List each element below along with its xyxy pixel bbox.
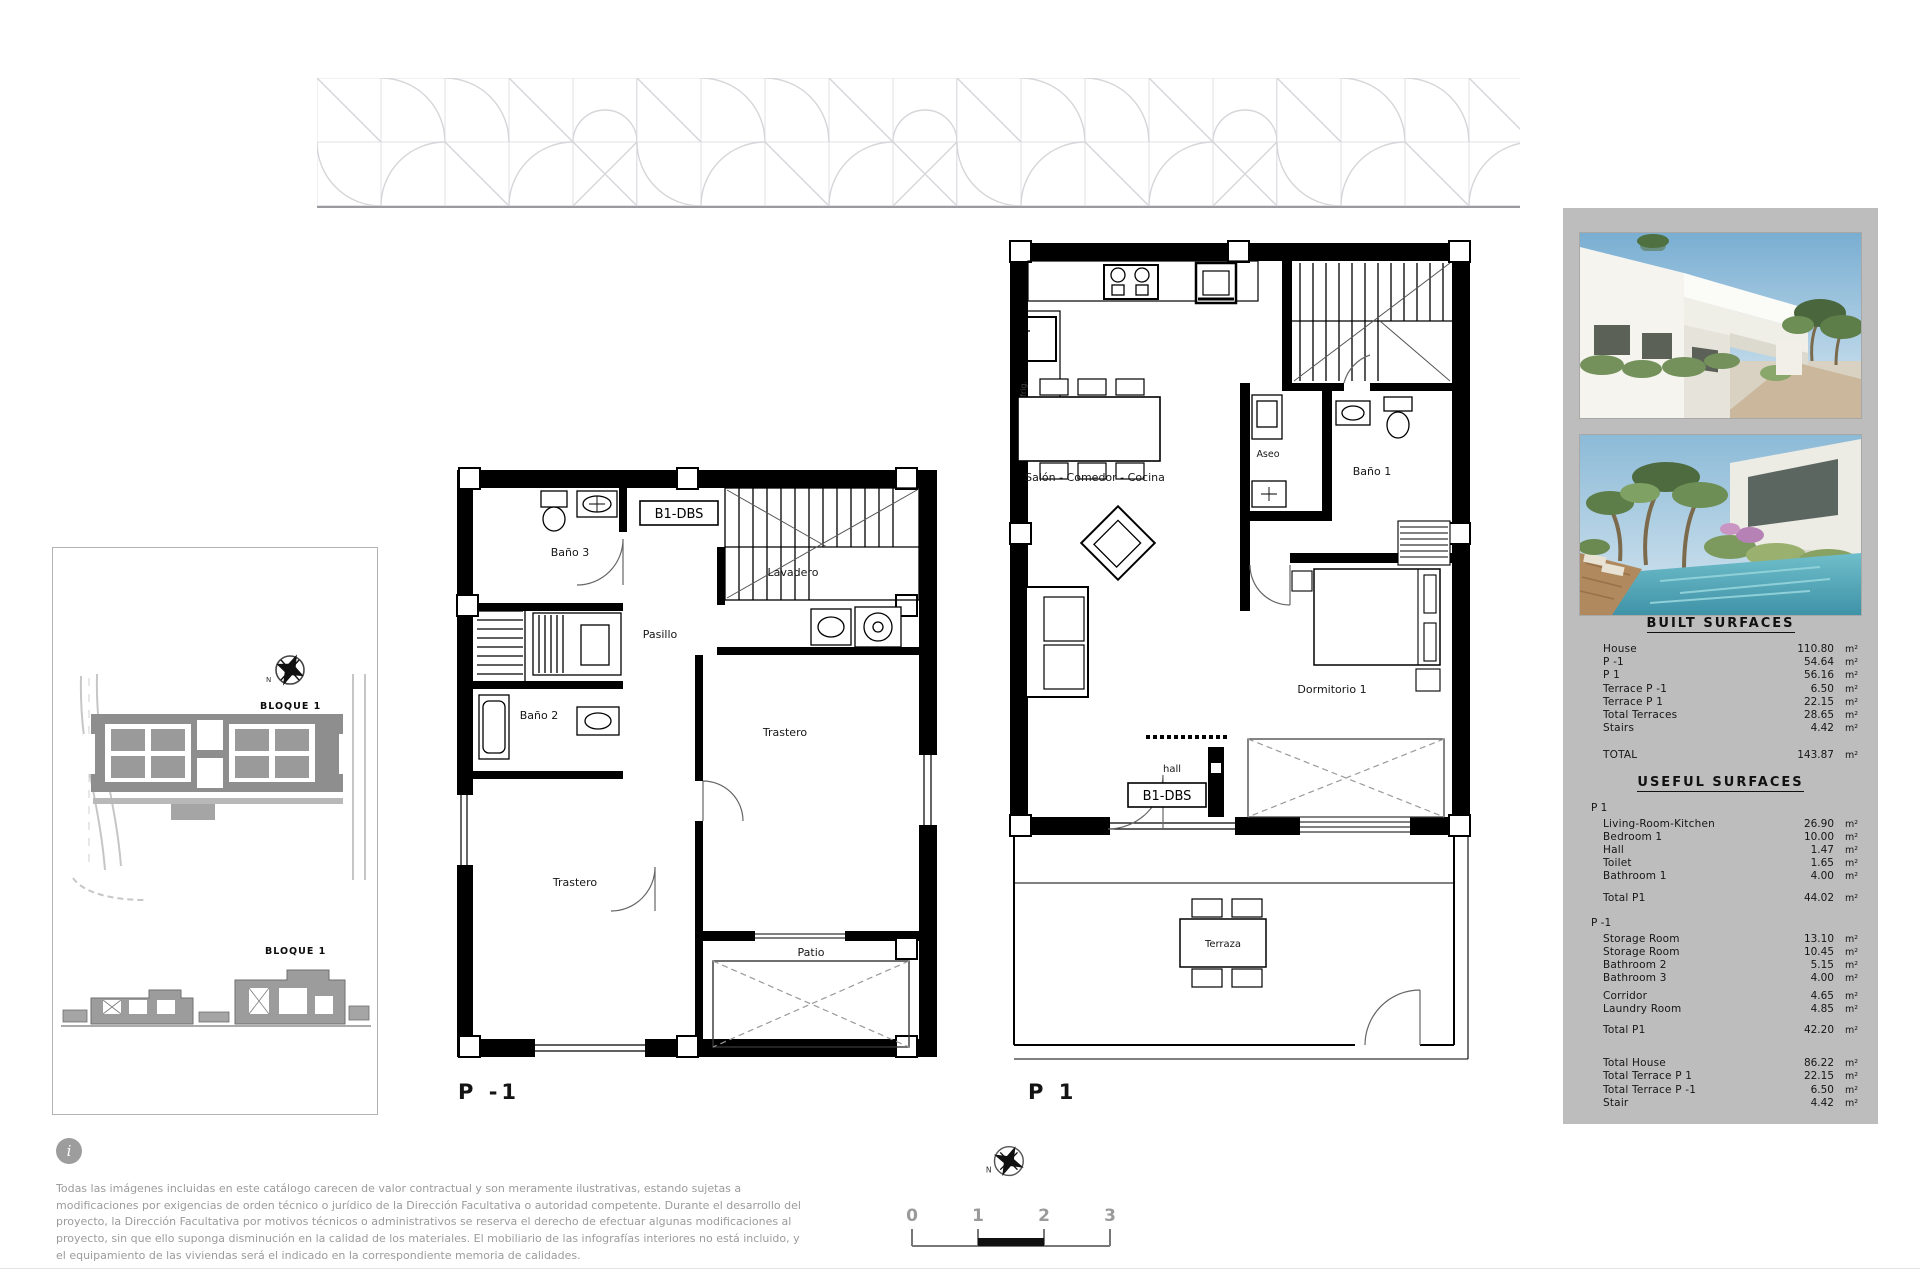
room-label-patio: Patio bbox=[798, 946, 825, 959]
site-plan-drawing: N BLOQUE 1 BLOQUE 1 bbox=[53, 548, 377, 1114]
room-label-pasillo: Pasillo bbox=[643, 628, 678, 641]
summary-row: Total Terrace P 122.15m² bbox=[1563, 1070, 1878, 1083]
site-north-compass-icon: N bbox=[266, 648, 311, 691]
scale-label-0: 0 bbox=[906, 1206, 918, 1226]
scale-bar-filled-segment bbox=[978, 1238, 1044, 1246]
built-row: P -154.64m² bbox=[1563, 656, 1878, 669]
useful-row: Toilet1.65m² bbox=[1563, 857, 1878, 870]
p1-void-area bbox=[1248, 739, 1444, 817]
armchair-icon bbox=[1081, 506, 1155, 580]
site-north-label: N bbox=[266, 676, 271, 684]
summary-row: Total House86.22m² bbox=[1563, 1057, 1878, 1070]
useful-row: Bathroom 34.00m² bbox=[1563, 972, 1878, 985]
room-label-terraza: Terraza bbox=[1204, 939, 1241, 950]
p1-wall-niche bbox=[1211, 763, 1221, 773]
useful-row: Living-Room-Kitchen26.90m² bbox=[1563, 818, 1878, 831]
useful-p1-total-row: Total P144.02m² bbox=[1563, 892, 1878, 905]
oven-icon bbox=[1196, 263, 1236, 303]
render-photo-exterior bbox=[1580, 233, 1861, 418]
pm1-columns bbox=[457, 468, 917, 1057]
plan-title-p-minus-1: P -1 bbox=[458, 1080, 520, 1104]
surfaces-sidebar: BUILT SURFACES House110.80m² P -154.64m²… bbox=[1563, 208, 1878, 1124]
built-row: Total Terraces28.65m² bbox=[1563, 709, 1878, 722]
scale-label-3: 3 bbox=[1104, 1206, 1116, 1226]
room-label-hall: hall bbox=[1163, 764, 1181, 775]
disclaimer-text: Todas las imágenes incluidas en este cat… bbox=[56, 1181, 804, 1265]
pm1-closet bbox=[533, 613, 621, 675]
render-pool-scene bbox=[1580, 435, 1861, 615]
north-compass-icon: N bbox=[983, 1140, 1029, 1186]
room-label-trastero-right: Trastero bbox=[762, 726, 807, 739]
pm1-patio-window bbox=[755, 931, 845, 941]
summary-row: Stair4.42m² bbox=[1563, 1097, 1878, 1110]
compass-north-label: N bbox=[986, 1166, 992, 1175]
scale-label-1: 1 bbox=[972, 1206, 984, 1226]
terrace-door-arc bbox=[1365, 990, 1420, 1045]
p1-bano1-fixtures bbox=[1336, 397, 1450, 565]
render-photo-pool bbox=[1580, 435, 1861, 615]
p1-dotted-divider bbox=[1146, 735, 1227, 739]
scale-bar-svg: 0 1 2 3 bbox=[900, 1203, 1126, 1255]
useful-row: Bathroom 14.00m² bbox=[1563, 870, 1878, 883]
site-plan-panel: N BLOQUE 1 BLOQUE 1 bbox=[52, 547, 378, 1115]
p1-hall-window-lines bbox=[1110, 823, 1235, 829]
site-bloque-label-top: BLOQUE 1 bbox=[260, 701, 321, 712]
p1-unit-label: B1-DBS bbox=[1143, 789, 1192, 804]
plan-title-p1: P 1 bbox=[1028, 1080, 1077, 1104]
pm1-unit-label-box: B1-DBS bbox=[640, 501, 718, 525]
built-row: P 156.16m² bbox=[1563, 669, 1878, 682]
built-total-row: TOTAL143.87m² bbox=[1563, 749, 1878, 762]
pm1-patio-area bbox=[713, 961, 909, 1047]
built-surfaces-title: BUILT SURFACES bbox=[1563, 616, 1878, 631]
sofa-icon bbox=[1026, 587, 1088, 697]
useful-row: Storage Room13.10m² bbox=[1563, 933, 1878, 946]
p1-room-labels: Salón - Comedor - Cocina Aseo Baño 1 Dor… bbox=[1025, 449, 1391, 950]
render-exterior-scene bbox=[1580, 233, 1861, 418]
sheet-bottom-rule bbox=[0, 1268, 1920, 1269]
useful-surfaces-title: USEFUL SURFACES bbox=[1563, 775, 1878, 790]
useful-row: Bathroom 25.15m² bbox=[1563, 959, 1878, 972]
pm1-unit-label: B1-DBS bbox=[655, 507, 704, 522]
room-label-lavadero: Lavadero bbox=[768, 566, 819, 579]
scale-bar: 0 1 2 3 bbox=[900, 1203, 1126, 1255]
room-label-bano1: Baño 1 bbox=[1353, 465, 1391, 478]
site-bloque-label-bottom: BLOQUE 1 bbox=[265, 946, 326, 957]
built-row: Stairs4.42m² bbox=[1563, 722, 1878, 735]
pm1-bano3-fixtures bbox=[541, 491, 617, 531]
info-icon: i bbox=[56, 1138, 82, 1164]
room-label-trastero-left: Trastero bbox=[552, 876, 597, 889]
pm1-staircase bbox=[725, 488, 919, 600]
bed-icon bbox=[1292, 569, 1440, 691]
built-row: Terrace P -16.50m² bbox=[1563, 683, 1878, 696]
dining-table-icon bbox=[1018, 379, 1160, 479]
site-building-block bbox=[83, 714, 351, 820]
useful-pm1-total-row: Total P142.20m² bbox=[1563, 1024, 1878, 1037]
stove-icon bbox=[1104, 265, 1158, 299]
useful-p1-header: P 1 bbox=[1563, 802, 1878, 814]
useful-pm1-header: P -1 bbox=[1563, 917, 1878, 929]
decorative-pattern-band bbox=[317, 78, 1520, 208]
built-row: Terrace P 122.15m² bbox=[1563, 696, 1878, 709]
floor-plan-p1: frig. bbox=[1000, 235, 1480, 1065]
room-label-salon: Salón - Comedor - Cocina bbox=[1025, 471, 1165, 484]
scale-label-2: 2 bbox=[1038, 1206, 1050, 1226]
fridge-label: frig. bbox=[1019, 381, 1028, 397]
built-row: House110.80m² bbox=[1563, 643, 1878, 656]
room-label-bano2: Baño 2 bbox=[520, 709, 558, 722]
pm1-bano2-fixtures bbox=[479, 695, 619, 759]
deco-pattern-svg bbox=[317, 78, 1520, 206]
room-label-bano3: Baño 3 bbox=[551, 546, 589, 559]
useful-row: Corridor4.65m² bbox=[1563, 990, 1878, 1003]
summary-row: Total Terrace P -16.50m² bbox=[1563, 1084, 1878, 1097]
pm1-interior-walls bbox=[473, 488, 919, 1039]
surface-tables: BUILT SURFACES House110.80m² P -154.64m²… bbox=[1563, 616, 1878, 1110]
room-label-aseo: Aseo bbox=[1256, 449, 1279, 460]
pm1-left-stairs bbox=[477, 611, 525, 681]
room-label-dormitorio1: Dormitorio 1 bbox=[1297, 683, 1366, 696]
floor-plan-p-minus-1: B1-DBS Baño 3 Lavadero Pasillo Baño 2 Tr… bbox=[455, 455, 940, 1080]
p1-unit-label-box: B1-DBS bbox=[1128, 783, 1206, 807]
useful-row: Laundry Room4.85m² bbox=[1563, 1003, 1878, 1016]
p1-staircase bbox=[1292, 263, 1452, 381]
useful-row: Storage Room10.45m² bbox=[1563, 946, 1878, 959]
compass-svg: N bbox=[983, 1140, 1029, 1186]
useful-row: Hall1.47m² bbox=[1563, 844, 1878, 857]
useful-row: Bedroom 110.00m² bbox=[1563, 831, 1878, 844]
site-elevation-drawing bbox=[61, 970, 371, 1026]
pm1-laundry-fixtures bbox=[811, 607, 901, 647]
